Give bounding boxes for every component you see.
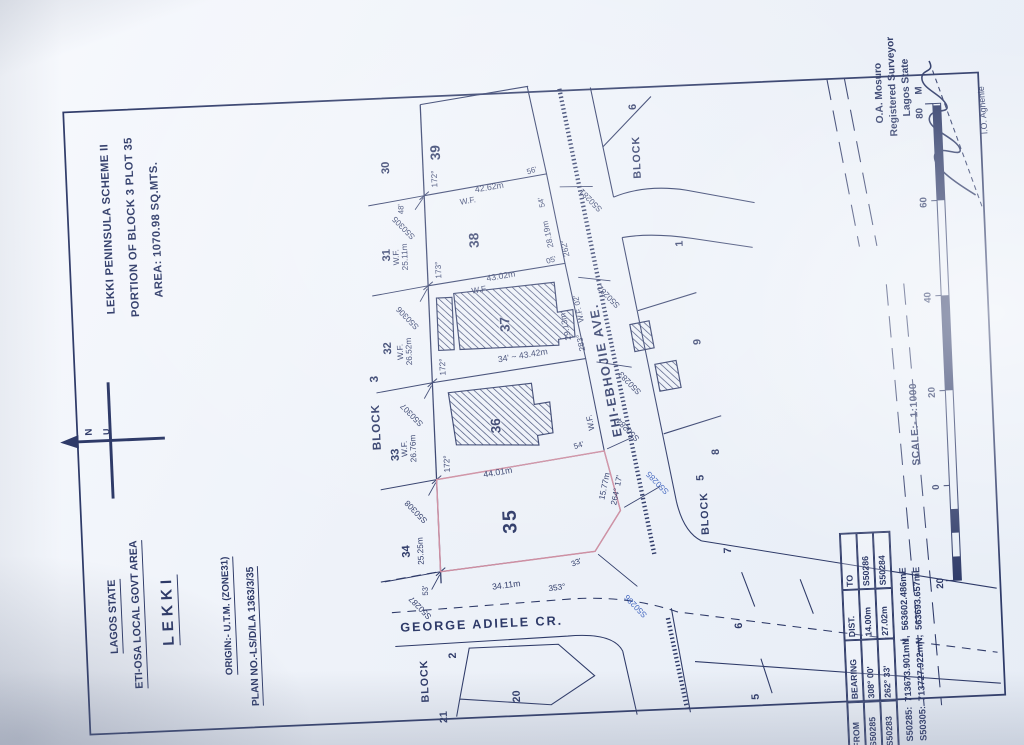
scale-tick-0: 0 <box>932 484 942 490</box>
block5-number: 5 <box>696 475 707 481</box>
angle-172-c: 172° <box>430 170 439 187</box>
table-cell: S50284 <box>873 532 892 589</box>
plot-2: 2 <box>448 652 459 658</box>
angle-173: 173° <box>434 261 443 278</box>
scale-bar <box>925 103 961 580</box>
plot-30: 30 <box>380 161 392 174</box>
angle-53: 53' <box>422 585 431 595</box>
plot-20: 20 <box>512 690 524 702</box>
dim-25-25: 25.25m <box>416 537 426 565</box>
plot35-outline <box>436 450 623 571</box>
scale-tick-20: 20 <box>928 387 939 398</box>
plot-1: 1 <box>675 240 686 246</box>
angle-172-b: 172° <box>438 358 447 375</box>
plot-5: 5 <box>751 693 762 699</box>
plot-38: 38 <box>467 232 482 248</box>
table-cell: S50283 <box>880 700 899 745</box>
scale-tick-40: 40 <box>924 292 935 303</box>
town-label: LEKKI <box>159 574 180 646</box>
wf-value: 26.52m <box>403 338 414 366</box>
plot-21: 21 <box>439 711 451 723</box>
block6-number: 6 <box>628 104 639 110</box>
plot-8: 8 <box>711 449 722 455</box>
plot-32: 32 <box>382 342 394 355</box>
plot-6: 6 <box>734 622 745 628</box>
bearing-table: FROM BEARING DIST. TO S50285 308° 00' 14… <box>839 531 900 745</box>
north-u-label: U <box>102 428 111 435</box>
survey-plan-photo: LAGOS STATE ETI-OSA LOCAL GOVT AREA LEKK… <box>0 0 1024 745</box>
angle-172-a: 172° <box>442 455 451 472</box>
scale-tick-20l: 20 <box>936 578 947 589</box>
block6-label: BLOCK <box>631 136 644 179</box>
scale-tick-80: 80 <box>916 108 927 119</box>
table-cell: 262° 33' <box>878 638 897 701</box>
plot-9: 9 <box>693 339 704 345</box>
angle-48: 48' <box>397 204 406 214</box>
dim-25-11: W.F.25.11m <box>391 243 409 271</box>
north-arrow-icon <box>58 380 168 501</box>
block5-label: BLOCK <box>699 492 712 535</box>
plot-36: 36 <box>488 418 503 434</box>
dim-26-76: W.F.26.76m <box>400 435 418 463</box>
wf-value: 26.76m <box>407 435 418 463</box>
plot-39: 39 <box>428 145 443 161</box>
dim-26-52: W.F.26.52m <box>395 338 413 366</box>
scale-unit: M <box>915 86 926 95</box>
table-cell: 27.02m <box>875 588 894 639</box>
north-n-label: N <box>85 428 95 435</box>
plot-37: 37 <box>497 317 512 333</box>
surveyor-signature <box>921 59 982 209</box>
block3-number: 3 <box>368 376 380 383</box>
scale-tick-60: 60 <box>919 197 930 208</box>
plot-35: 35 <box>500 508 521 534</box>
survey-plan-sheet: LAGOS STATE ETI-OSA LOCAL GOVT AREA LEKK… <box>0 0 1023 745</box>
plot-34: 34 <box>401 545 413 558</box>
block3-label: BLOCK <box>369 404 383 451</box>
block2-label: BLOCK <box>419 659 432 702</box>
plot-7: 7 <box>723 547 734 553</box>
wf-value: 25.11m <box>399 243 410 270</box>
